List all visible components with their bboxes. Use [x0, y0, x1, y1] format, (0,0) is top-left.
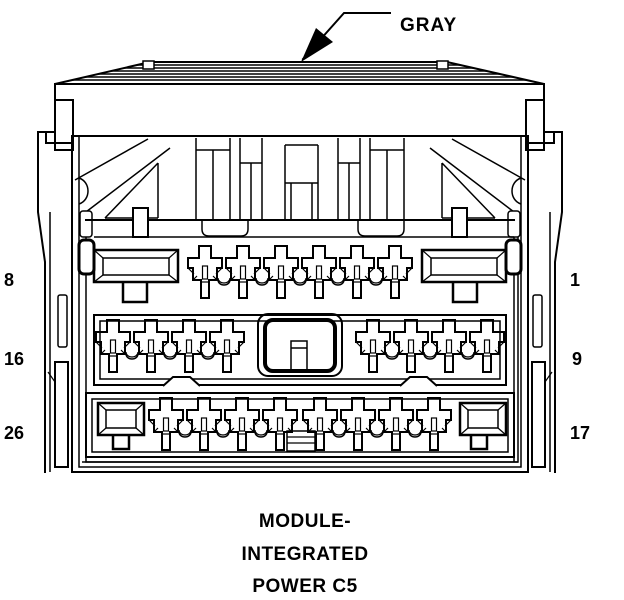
caption-line-1: MODULE- — [259, 511, 351, 532]
terminal-pin8 — [94, 250, 178, 302]
caption-line-3: POWER C5 — [252, 576, 357, 597]
internal-structure — [75, 138, 525, 274]
housing-top-band — [55, 84, 544, 150]
gray-callout-arrow — [301, 13, 390, 62]
terminal-pin1 — [422, 250, 506, 302]
pin-label-26: 26 — [4, 423, 24, 443]
terminal-row-1 — [94, 246, 506, 302]
side-wing-left — [38, 132, 72, 472]
color-callout-label: GRAY — [400, 15, 457, 36]
connector-diagram-page: GRAY — [0, 0, 624, 600]
arrowhead — [301, 28, 333, 62]
connector-diagram: GRAY — [0, 0, 624, 600]
cover-notch-left — [143, 61, 154, 69]
comb-shelf — [86, 208, 514, 237]
terminal-row-3 — [86, 393, 514, 457]
caption: MODULE- INTEGRATED POWER C5 — [241, 511, 368, 597]
terminal-pin26 — [98, 403, 144, 449]
terminal-pin17 — [460, 403, 506, 449]
pin-label-8: 8 — [4, 270, 14, 290]
cover-notch-right — [437, 61, 448, 69]
comb-tab-left — [133, 208, 148, 237]
top-cover — [55, 61, 544, 84]
terminal-row-2 — [94, 314, 506, 386]
pin-label-16: 16 — [4, 349, 24, 369]
pin-label-17: 17 — [570, 423, 590, 443]
row3-center-detail — [287, 431, 315, 451]
pin-label-9: 9 — [572, 349, 582, 369]
side-wing-right — [528, 132, 562, 472]
keyway-block — [258, 314, 342, 376]
pin-label-1: 1 — [570, 270, 580, 290]
comb-tab-right — [452, 208, 467, 237]
caption-line-2: INTEGRATED — [241, 544, 368, 565]
